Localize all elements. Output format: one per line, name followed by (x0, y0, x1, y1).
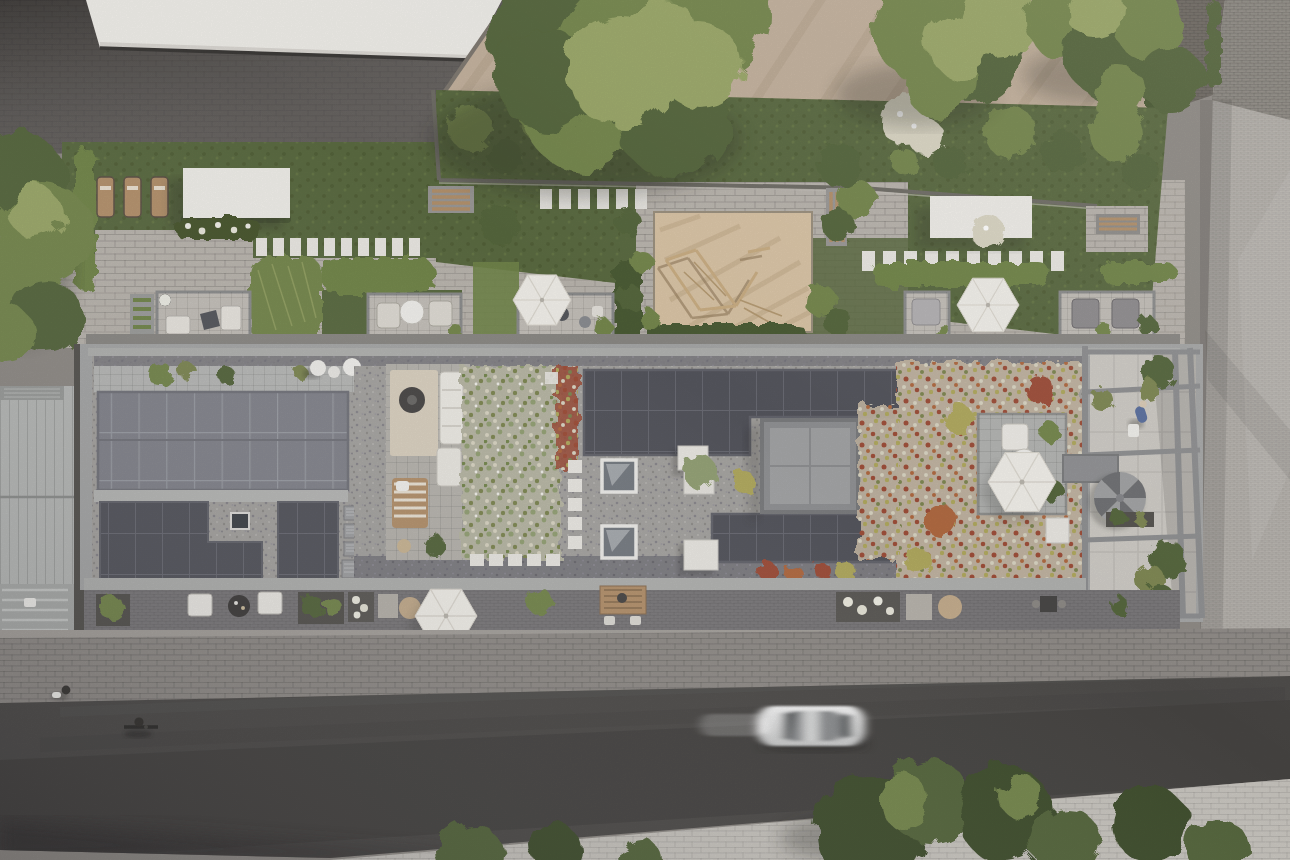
film-grain (0, 0, 1290, 860)
site-plan-svg (0, 0, 1290, 860)
aerial-render (0, 0, 1290, 860)
